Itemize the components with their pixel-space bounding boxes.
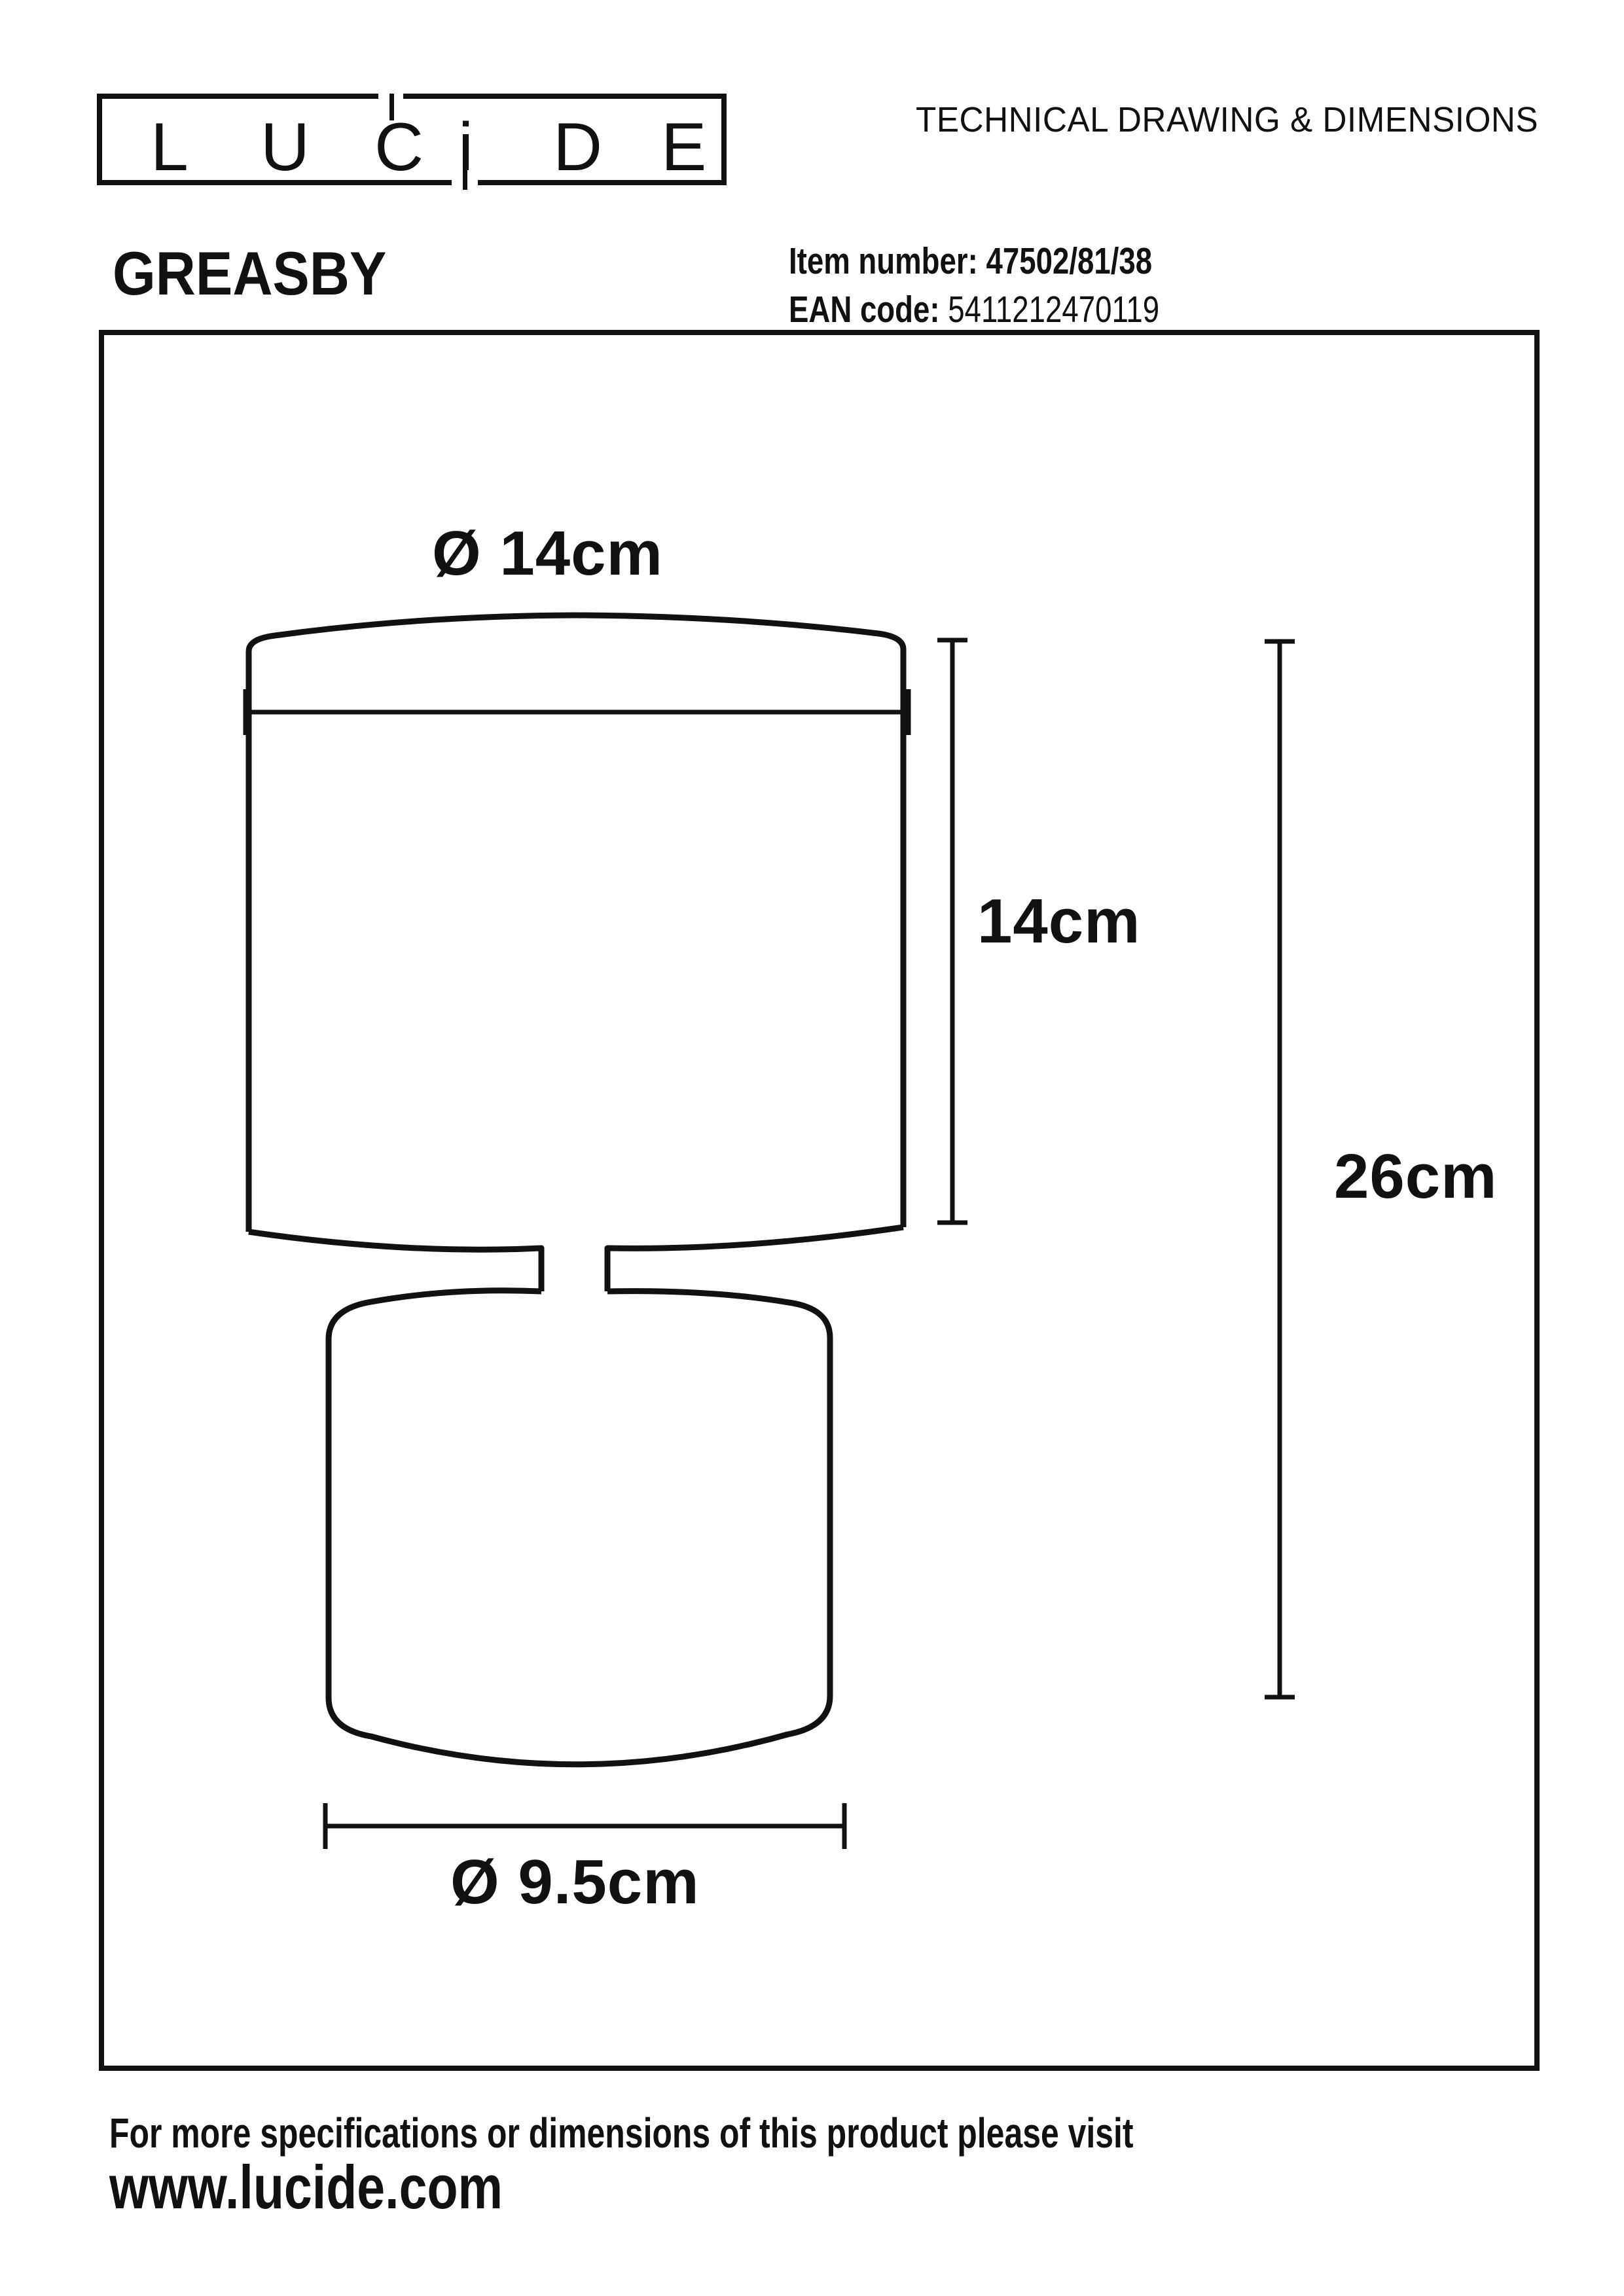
lamp-shade-bottom-right <box>607 1227 903 1291</box>
dim-base-diameter-label: Ø 9.5cm <box>450 1847 700 1917</box>
dim-base-diameter: Ø 9.5cm <box>325 1803 844 1917</box>
dim-shade-height: 14cm <box>937 640 1141 1223</box>
dim-total-height: 26cm <box>1265 641 1498 1697</box>
lamp-shade-outline <box>249 615 903 1232</box>
drawing-frame <box>101 332 1537 2068</box>
footer-website: www.lucide.com <box>109 2152 503 2223</box>
footer-note: For more specifications or dimensions of… <box>109 2109 1133 2157</box>
lamp-base-outline <box>329 1291 830 1765</box>
technical-drawing: Ø 14cm 14cm 26cm Ø 9.5cm <box>0 0 1624 2296</box>
dim-total-height-label: 26cm <box>1334 1141 1498 1211</box>
dim-shade-height-label: 14cm <box>977 886 1141 956</box>
spec-sheet-page: L U C i D E TECHNICAL DRAWING & DIMENSIO… <box>0 0 1624 2296</box>
dim-top-diameter-label: Ø 14cm <box>432 518 663 588</box>
lamp-shade-bottom-left <box>249 1232 541 1291</box>
